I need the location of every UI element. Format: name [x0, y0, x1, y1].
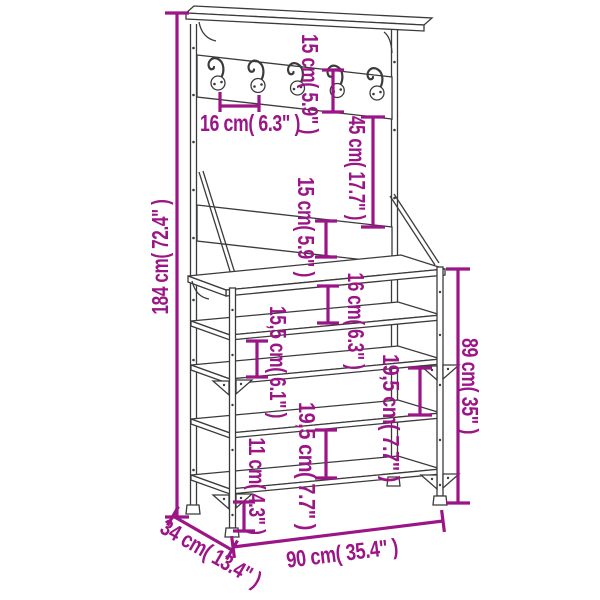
dim-label-hook-rail-height: 15 cm( 5.9" )	[297, 34, 323, 134]
dimension-diagram: 184 cm( 72.4" ) 15 cm( 5.9" ) 16 cm( 6.3…	[0, 0, 600, 600]
top-shelf-left-corbel	[199, 22, 216, 41]
dim-label-shelf2-to-shelf3: 15,5 cm( 6.1" )	[265, 306, 291, 418]
dim-label-shelf5-to-floor: 11 cm( 4.3" )	[244, 438, 270, 535]
dim-label-shelf4-to-shelf5: 19,5 cm( 7.7" )	[294, 402, 320, 530]
dim-label-total-height: 184 cm( 72.4" )	[147, 200, 173, 315]
dim-label-hook-spacing: 16 cm( 6.3" )	[200, 110, 300, 136]
back-left-foot	[186, 505, 200, 514]
dim-label-bench-to-shelf2: 16 cm( 6.3" )	[343, 273, 369, 370]
top-shelf-right-corbel	[384, 32, 392, 53]
dim-label-hooks-to-backboard: 45 cm( 17.7" )	[344, 116, 370, 220]
dim-label-backboard-height: 15 cm( 5.9" )	[293, 177, 319, 277]
front-right-foot	[433, 496, 447, 505]
front-left-leg	[230, 288, 236, 528]
dim-label-shelf3-to-shelf4: 19,5 cm( 7.7" )	[378, 354, 404, 482]
dim-label-rack-height: 89 cm( 35" )	[457, 338, 483, 434]
shelf-2	[191, 302, 441, 340]
furniture-dimension-drawing: 184 cm( 72.4" ) 15 cm( 5.9" ) 16 cm( 6.3…	[0, 0, 600, 600]
front-right-leg	[437, 267, 443, 496]
